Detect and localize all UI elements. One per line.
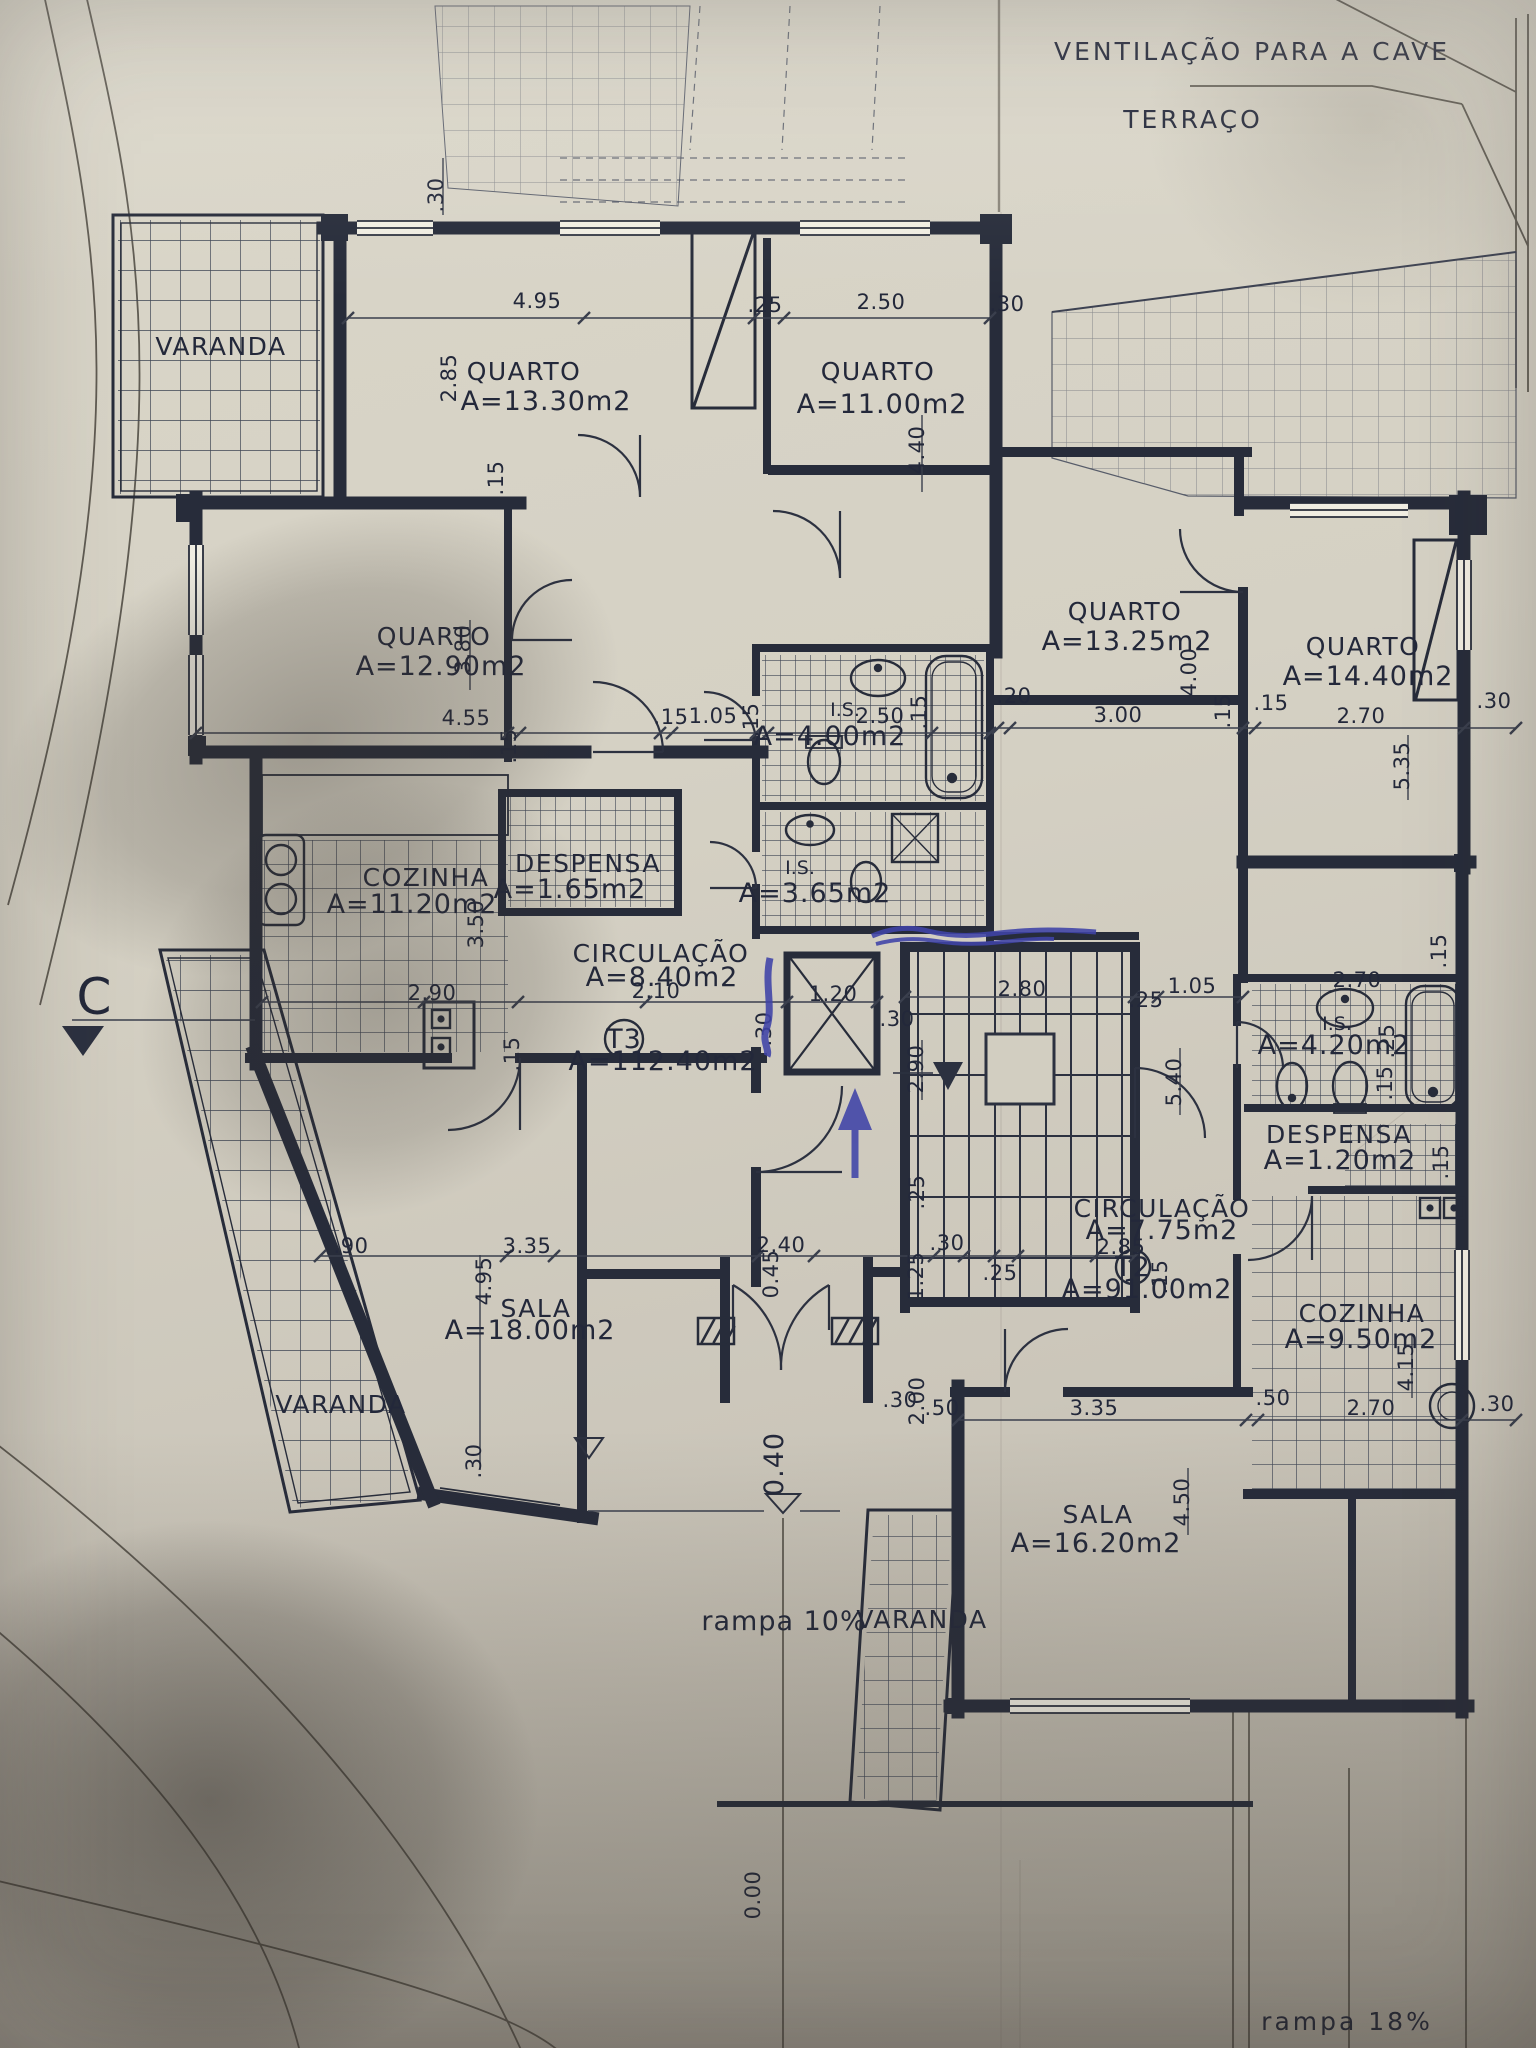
room-label-varanda-left: VARANDA <box>275 1390 406 1419</box>
dim-label: .30 <box>883 1388 918 1412</box>
dim-label: 2.70 <box>1347 1396 1396 1420</box>
dim-label: .15 <box>484 461 508 496</box>
dim-label: .25 <box>983 1261 1018 1285</box>
room-label-quarto-a: QUARTO <box>467 357 582 386</box>
dim-label: 2.70 <box>1337 704 1386 728</box>
dim-label: 3.50 <box>464 900 488 949</box>
dim-label: 2.10 <box>632 979 681 1003</box>
dim-label: 3.80 <box>451 625 475 674</box>
dim-label: 4.95 <box>513 289 562 313</box>
dim-label: .15 <box>1429 1145 1453 1180</box>
room-label-varanda-bottom: VARANDA <box>856 1605 987 1634</box>
dim-label: 2.85 <box>1097 1235 1146 1259</box>
dim-label: .15 <box>497 729 521 764</box>
dim-label: 4.15 <box>1394 1343 1418 1392</box>
dim-label: 4.40 <box>905 426 929 475</box>
area-t3: A=112.40m2 <box>568 1046 757 1077</box>
dim-label: .20 <box>997 684 1032 708</box>
dim-label: .30 <box>990 292 1025 316</box>
room-area-despensa-t2: A=1.20m2 <box>1264 1145 1417 1176</box>
level-000: 0.00 <box>741 1871 765 1920</box>
dim-label: 2.80 <box>998 977 1047 1001</box>
floor-plan-drawing: VENTILAÇÃO PARA A CAVE TERRAÇO VARANDA Q… <box>0 0 1536 2048</box>
dim-label: .25 <box>1375 1024 1399 1059</box>
room-area-quarto-e: A=14.40m2 <box>1283 661 1454 692</box>
dim-label: 2.50 <box>857 290 906 314</box>
dim-label: 0.45 <box>759 1250 783 1299</box>
room-area-sala-t2: A=16.20m2 <box>1011 1528 1182 1559</box>
elevator-shaft <box>787 955 877 1072</box>
room-label-quarto-b: QUARTO <box>821 357 936 386</box>
room-area-quarto-b: A=11.00m2 <box>797 389 968 420</box>
dim-label: .30 <box>1477 689 1512 713</box>
dim-label: .30 <box>880 1007 915 1031</box>
varanda-bottom-tiles <box>856 1515 952 1806</box>
dim-label: 3.35 <box>503 1234 552 1258</box>
dim-label: .15 <box>500 1037 524 1072</box>
dim-label: 4.95 <box>472 1257 496 1306</box>
dim-label: 3.35 <box>1070 1396 1119 1420</box>
note-ventilation: VENTILAÇÃO PARA A CAVE <box>1054 36 1450 66</box>
dim-label: 3.00 <box>1094 703 1143 727</box>
dim-label: .30 <box>462 1444 486 1479</box>
room-area-despensa-t3: A=1.65m2 <box>494 874 647 905</box>
dim-label: .30 <box>424 178 448 213</box>
floor-plan-photo: VENTILAÇÃO PARA A CAVE TERRAÇO VARANDA Q… <box>0 0 1536 2048</box>
room-label-varanda-top-left: VARANDA <box>155 332 286 361</box>
dim-label: 2.90 <box>904 1045 928 1094</box>
dim-label: 1.05 <box>689 704 738 728</box>
dim-label: 5.40 <box>1162 1058 1186 1107</box>
dim-label: .15 <box>1148 1260 1172 1295</box>
dim-label: 1.25 <box>904 1252 928 1301</box>
room-area-is-t3-b: A=3.65m2 <box>739 878 892 909</box>
dim-label: .15 <box>1373 1066 1397 1101</box>
dim-label: 5.35 <box>1390 742 1414 791</box>
dim-label: 2.50 <box>856 704 905 728</box>
dim-label: .90 <box>334 1234 369 1258</box>
dim-label: .15 <box>1427 934 1451 969</box>
dim-label: .15 <box>739 703 763 738</box>
apartment-tag-t3: T3 A=112.40m2 <box>568 1020 757 1077</box>
dim-label: .25 <box>905 1175 929 1210</box>
room-area-quarto-c: A=12.90m2 <box>356 651 527 682</box>
note-ramp10: rampa 10% <box>701 1606 866 1637</box>
dim-label: .25 <box>748 293 783 317</box>
dim-label: .15 <box>1211 694 1235 729</box>
terrace-hatch-right <box>1052 252 1516 498</box>
dim-label: .15 <box>654 705 689 729</box>
dim-label: .15 <box>1254 691 1289 715</box>
dim-label: 2.85 <box>437 354 461 403</box>
dim-label: .50 <box>925 1396 960 1420</box>
section-cut-triangle <box>62 1026 104 1056</box>
room-area-quarto-a: A=13.30m2 <box>461 386 632 417</box>
area-t2: A=91.00m2 <box>1062 1274 1233 1305</box>
room-label-quarto-e: QUARTO <box>1306 632 1421 661</box>
room-label-sala-t2: SALA <box>1062 1500 1133 1529</box>
room-area-sala-t3: A=18.00m2 <box>445 1315 616 1346</box>
dim-label: 4.00 <box>1177 648 1201 697</box>
room-label-is-t3-b: I.S. <box>785 857 815 879</box>
dim-label: .15 <box>907 695 931 730</box>
dim-label: .30 <box>930 1231 965 1255</box>
level-040: 0.40 <box>759 1432 790 1496</box>
dim-label: .30 <box>1480 1392 1515 1416</box>
dim-label: 1.05 <box>1168 974 1217 998</box>
dim-label: 1.20 <box>809 982 858 1006</box>
terrace-hatch-top <box>435 6 905 206</box>
note-terrace: TERRAÇO <box>1122 105 1263 134</box>
dim-label: 4.50 <box>1170 1478 1194 1527</box>
section-marker-c: C <box>77 968 112 1026</box>
dim-label: 4.55 <box>442 706 491 730</box>
room-label-cozinha-t3: COZINHA <box>363 863 490 892</box>
dim-label: .25 <box>1129 988 1164 1012</box>
dim-label: 2.70 <box>1333 968 1382 992</box>
room-label-quarto-d: QUARTO <box>1068 597 1183 626</box>
dim-label: .50 <box>1256 1386 1291 1410</box>
dim-label: 2.90 <box>408 981 457 1005</box>
note-ramp18: rampa 18% <box>1261 2007 1433 2036</box>
